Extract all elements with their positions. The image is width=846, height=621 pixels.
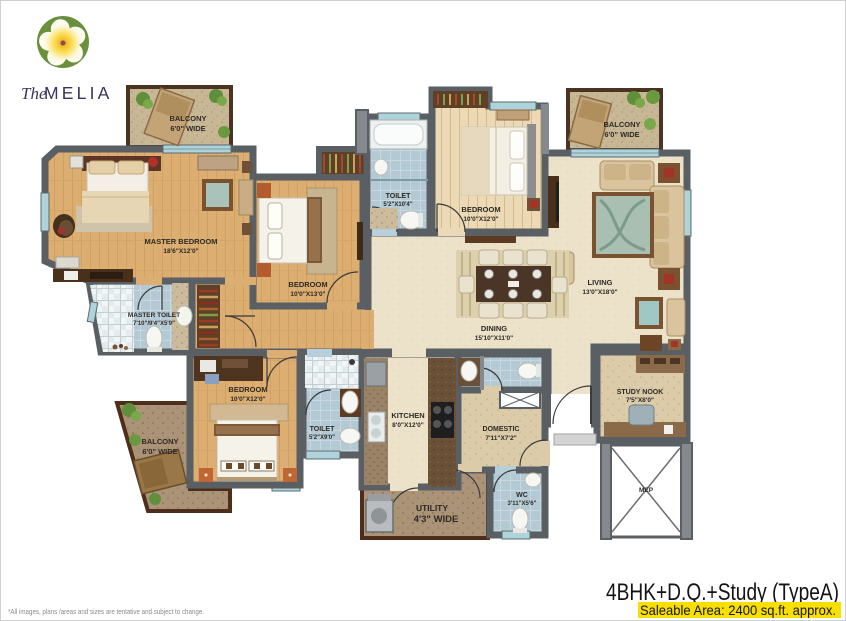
svg-text:BEDROOM: BEDROOM — [461, 205, 500, 214]
svg-text:LIVING: LIVING — [587, 278, 612, 287]
svg-text:15'10"X11'0": 15'10"X11'0" — [475, 335, 514, 342]
svg-text:7'5"X8'0": 7'5"X8'0" — [626, 397, 654, 404]
svg-text:10'0"X12'0": 10'0"X12'0" — [463, 216, 498, 223]
svg-text:*All images, plans /areas and: *All images, plans /areas and sizes are … — [8, 607, 204, 616]
svg-text:7'10"/9'4"X5'9": 7'10"/9'4"X5'9" — [133, 321, 175, 327]
svg-text:MEP: MEP — [639, 487, 654, 494]
svg-text:MASTER BEDROOM: MASTER BEDROOM — [145, 237, 218, 246]
svg-text:DINING: DINING — [481, 324, 507, 333]
svg-text:5'2"X10'4": 5'2"X10'4" — [383, 202, 412, 208]
svg-text:10'0"X12'0": 10'0"X12'0" — [230, 396, 265, 403]
svg-text:7'11"X7'2": 7'11"X7'2" — [485, 435, 516, 442]
svg-text:BALCONY: BALCONY — [603, 120, 640, 129]
svg-text:18'6"X12'0": 18'6"X12'0" — [163, 248, 198, 255]
svg-text:BEDROOM: BEDROOM — [288, 280, 327, 289]
svg-text:6'0" WIDE: 6'0" WIDE — [142, 447, 177, 456]
svg-text:BALCONY: BALCONY — [169, 114, 206, 123]
svg-text:6'0" WIDE: 6'0" WIDE — [170, 124, 205, 133]
svg-text:MASTER TOILET: MASTER TOILET — [128, 312, 180, 319]
svg-text:MELIA: MELIA — [44, 83, 113, 103]
svg-text:STUDY NOOK: STUDY NOOK — [617, 389, 664, 396]
svg-text:DOMESTIC: DOMESTIC — [483, 426, 520, 433]
svg-text:13'0"X18'0": 13'0"X18'0" — [582, 289, 617, 296]
svg-text:6'0" WIDE: 6'0" WIDE — [604, 130, 639, 139]
svg-text:KITCHEN: KITCHEN — [391, 411, 424, 420]
svg-text:4'3" WIDE: 4'3" WIDE — [414, 514, 459, 525]
svg-text:Saleable Area: 2400 sq.ft. app: Saleable Area: 2400 sq.ft. approx. — [640, 602, 836, 618]
svg-text:3'11"X5'6": 3'11"X5'6" — [508, 501, 537, 507]
svg-text:BEDROOM: BEDROOM — [228, 385, 267, 394]
svg-text:WC: WC — [516, 492, 528, 499]
svg-text:TOILET: TOILET — [386, 193, 411, 200]
svg-text:BALCONY: BALCONY — [141, 437, 178, 446]
svg-text:5'2"X9'0": 5'2"X9'0" — [309, 435, 335, 441]
svg-text:UTILITY: UTILITY — [416, 503, 448, 513]
svg-text:10'0"X13'0": 10'0"X13'0" — [290, 291, 325, 298]
svg-text:TOILET: TOILET — [310, 426, 335, 433]
svg-text:8'0"X12'0": 8'0"X12'0" — [392, 422, 424, 429]
